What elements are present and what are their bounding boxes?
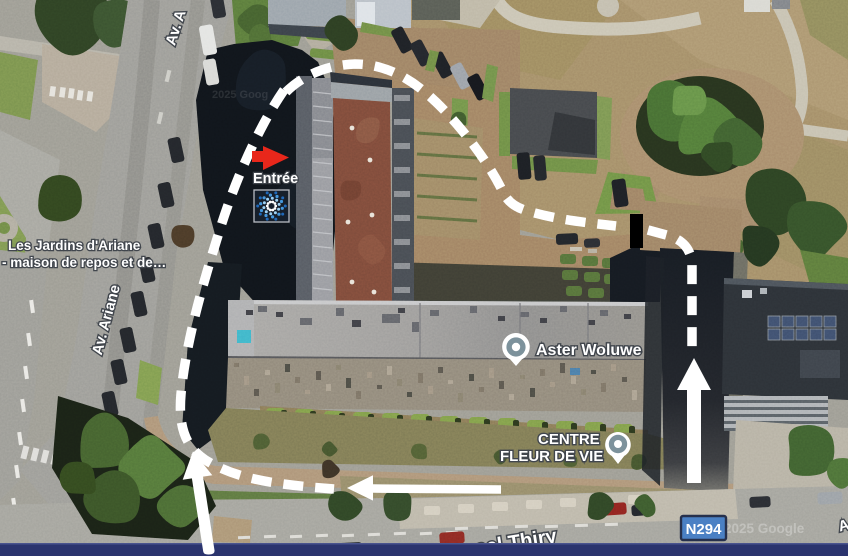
svg-text:Aster Woluwe: Aster Woluwe xyxy=(536,342,642,359)
svg-text:2025 Goog: 2025 Goog xyxy=(212,89,268,101)
svg-text:CENTRE: CENTRE xyxy=(538,431,600,448)
svg-text:N294: N294 xyxy=(686,521,723,538)
svg-text:Entrée: Entrée xyxy=(253,171,298,187)
svg-text:Les Jardins d'Ariane: Les Jardins d'Ariane xyxy=(8,238,141,253)
svg-text:- maison de repos et de…: - maison de repos et de… xyxy=(2,255,166,270)
svg-text:2025 Google: 2025 Google xyxy=(724,521,805,536)
svg-text:FLEUR DE VIE: FLEUR DE VIE xyxy=(500,448,603,465)
